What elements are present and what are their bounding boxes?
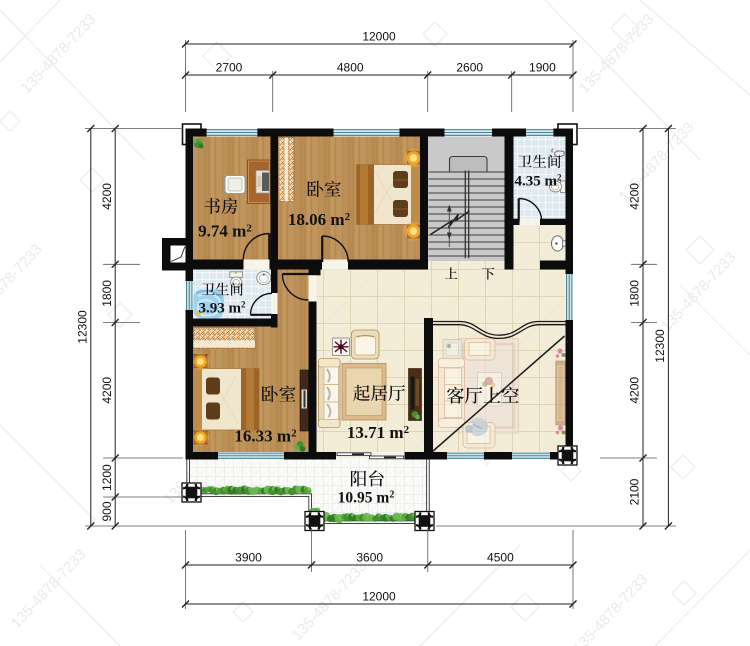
svg-text:18.06 m2: 18.06 m2 [288, 210, 351, 229]
svg-text:3900: 3900 [235, 551, 262, 565]
svg-text:2100: 2100 [628, 478, 642, 505]
svg-text:3600: 3600 [356, 551, 383, 565]
svg-text:1800: 1800 [100, 280, 114, 307]
svg-text:13.71 m2: 13.71 m2 [347, 423, 410, 442]
svg-text:4200: 4200 [628, 183, 642, 210]
svg-text:12000: 12000 [362, 590, 396, 604]
svg-text:10.95 m2: 10.95 m2 [338, 490, 395, 507]
svg-text:2700: 2700 [216, 61, 243, 75]
svg-text:2600: 2600 [456, 61, 483, 75]
svg-text:1800: 1800 [628, 280, 642, 307]
svg-text:1200: 1200 [100, 464, 114, 491]
svg-text:12300: 12300 [653, 329, 667, 363]
svg-text:12300: 12300 [76, 310, 90, 344]
svg-text:4200: 4200 [628, 377, 642, 404]
svg-text:1900: 1900 [529, 61, 556, 75]
svg-text:4.35 m2: 4.35 m2 [515, 173, 563, 190]
svg-text:4800: 4800 [337, 61, 364, 75]
svg-text:4500: 4500 [487, 551, 514, 565]
svg-text:16.33 m2: 16.33 m2 [234, 427, 297, 446]
svg-text:4200: 4200 [100, 183, 114, 210]
svg-text:12000: 12000 [362, 30, 396, 44]
svg-text:4200: 4200 [100, 377, 114, 404]
svg-text:3.93 m2: 3.93 m2 [199, 300, 247, 317]
svg-text:900: 900 [100, 501, 114, 521]
svg-text:9.74 m2: 9.74 m2 [198, 222, 252, 241]
